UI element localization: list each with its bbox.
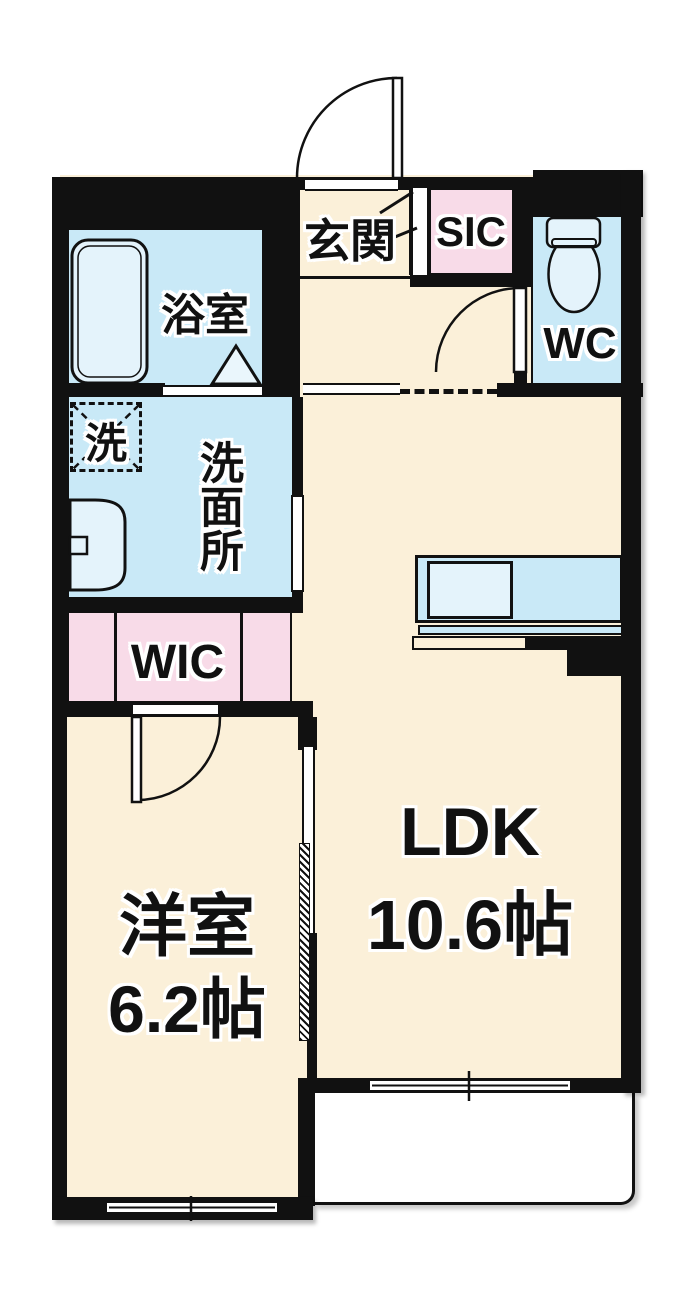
wall-wc-bottom — [497, 383, 643, 397]
wic-label: WIC — [120, 633, 235, 691]
floor-bedroom-lower — [60, 1085, 310, 1203]
washer-label: 洗 — [80, 416, 132, 464]
ldk-opening-dashed — [400, 389, 497, 394]
wall-balcony-left — [298, 1093, 315, 1206]
wall-wc-left-a — [514, 273, 527, 290]
wic-partition-left — [114, 613, 117, 701]
wall-bath-wash-divider — [52, 383, 165, 397]
bathroom-door-sill — [163, 385, 262, 397]
washroom-label: 洗面所 — [188, 425, 246, 587]
partition-screen-panel — [299, 843, 310, 1041]
ldk-window — [370, 1079, 570, 1092]
wic-partition-right — [240, 613, 243, 701]
kitchen-step — [412, 636, 527, 650]
bedroom-window — [107, 1201, 277, 1214]
wc-label: WC — [535, 318, 625, 370]
floor-plan: 玄関 SIC WC 浴室 洗 洗面所 WIC 洋室 6.2帖 LDK 10.6帖 — [0, 0, 700, 1303]
wall-washroom-bottom — [52, 597, 303, 613]
entrance-door-sill — [305, 178, 398, 191]
sic-label: SIC — [425, 208, 517, 256]
wall-kitchen-pipe-a — [527, 636, 621, 650]
hall-ldk-lintel — [303, 383, 400, 395]
washroom-sliding-door — [291, 495, 304, 592]
wall-outer-right — [621, 170, 641, 1093]
ldk-label: LDK — [370, 794, 570, 870]
washroom-door-track-dashed — [293, 400, 297, 492]
kitchen-counter-edge — [418, 625, 623, 635]
genkan-label: 玄関 — [300, 212, 400, 264]
ldk-size-label: 10.6帖 — [350, 876, 590, 962]
wall-outer-left — [52, 177, 67, 1220]
bedroom-size-label: 6.2帖 — [77, 962, 297, 1046]
bathroom-label: 浴室 — [140, 286, 270, 336]
bedroom-label: 洋室 — [87, 880, 287, 960]
balcony — [313, 1093, 635, 1205]
genkan-step-line — [298, 276, 412, 279]
wic-door-sill — [133, 703, 218, 716]
wall-kitchen-pipe-b — [567, 650, 621, 676]
kitchen-sink — [427, 561, 513, 619]
entrance-door-icon — [297, 78, 402, 178]
